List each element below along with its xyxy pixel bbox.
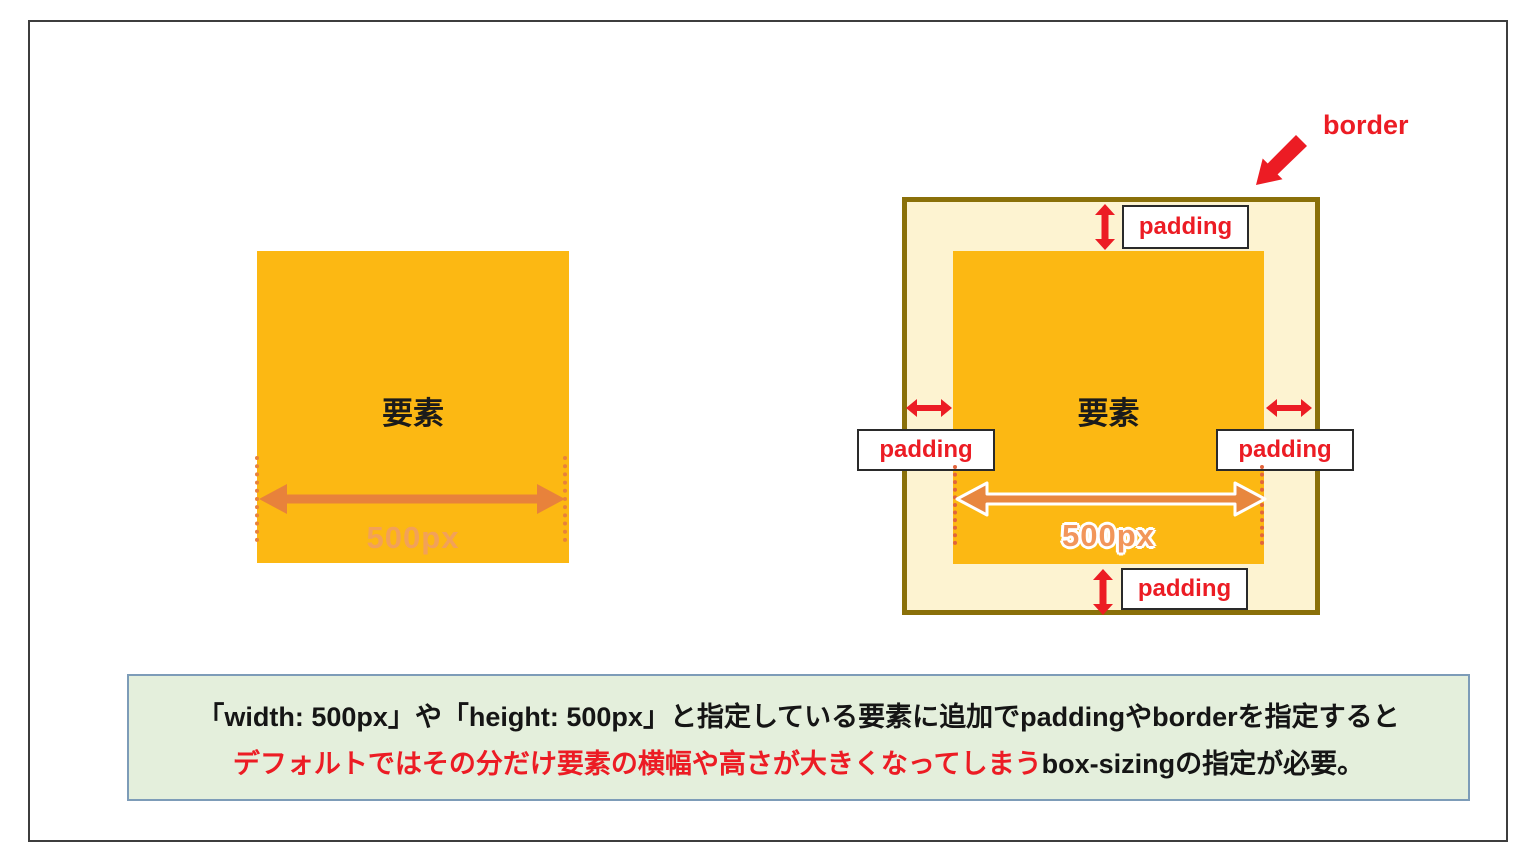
left-width-arrow (259, 481, 565, 517)
padding-arrow-right-icon (1266, 398, 1312, 418)
slide-frame: 要素 500px border 要素 padding padding paddi… (28, 20, 1508, 842)
padding-arrow-bottom-icon (1092, 569, 1114, 615)
border-callout-arrow-icon (1250, 130, 1312, 190)
note-line-2: デフォルトではその分だけ要素の横幅や高さが大きくなってしまうbox-sizing… (233, 742, 1364, 781)
left-width-value-label: 500px (257, 520, 569, 556)
explanation-note-box: 「width: 500px」や「height: 500px」と指定している要素に… (127, 674, 1470, 801)
note-line-2-highlight: デフォルトではその分だけ要素の横幅や高さが大きくなってしまう (233, 749, 1042, 779)
border-callout-label: border (1323, 110, 1409, 141)
padding-label-left: padding (857, 429, 995, 471)
note-line-2-rest: box-sizingの指定が必要。 (1042, 749, 1365, 779)
right-width-value-label: 500px (953, 518, 1264, 554)
padding-label-right: padding (1216, 429, 1354, 471)
padding-arrow-left-icon (906, 398, 952, 418)
note-line-1: 「width: 500px」や「height: 500px」と指定している要素に… (197, 695, 1399, 734)
right-element-label: 要素 (953, 388, 1264, 433)
padding-label-top: padding (1122, 205, 1249, 249)
right-width-arrow (955, 479, 1267, 519)
padding-label-bottom: padding (1121, 568, 1248, 610)
padding-arrow-top-icon (1094, 204, 1116, 250)
left-element-label: 要素 (257, 388, 569, 433)
